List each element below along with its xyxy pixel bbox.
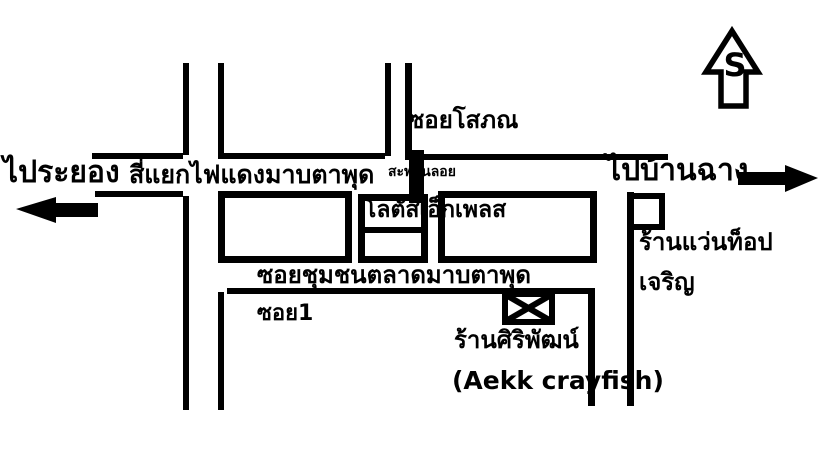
label-intersection: สี่แยกไฟแดงมาบตาพุด [129, 161, 374, 189]
road-soi-sophon-west [385, 63, 391, 156]
label-to-rayong: ไประยอง [3, 156, 120, 189]
label-optical-shop-line1: ร้านแว่นท็อป [639, 229, 773, 255]
label-soi-market: ซอยชุมชนตลาดมาบตาพุด [257, 262, 531, 288]
label-lotus-express: โลตัสเอ็กเพลส [364, 198, 506, 223]
road-left-vertical-west-lower [183, 196, 189, 410]
label-optical-shop-line2: เจริญ [639, 269, 695, 295]
label-soi-1: ซอย1 [257, 302, 313, 326]
label-soi-sophon: ซอยโสภณ [408, 107, 518, 133]
optical-shop-box [628, 193, 665, 230]
label-to-ban-chang: ไปบ้านฉาง [606, 154, 748, 187]
footbridge-bar [409, 150, 424, 203]
road-main-top-mid [218, 153, 385, 159]
building-lotus-divider [358, 227, 428, 233]
hand-drawn-map: S ไประยอง สี่แยกไฟแดงมาบตาพุด สะพานลอย ซ… [0, 0, 819, 460]
building-left-block [218, 191, 352, 263]
label-crayfish-shop-en: (Aekk crayfish) [452, 367, 664, 395]
road-main-bottom-west [95, 191, 183, 197]
west-arrow-icon [14, 190, 100, 226]
compass-letter: S [723, 46, 746, 84]
label-crayfish-shop-th: ร้านศิริพัฒน์ [454, 327, 579, 353]
north-arrow-icon: S [702, 26, 764, 110]
road-left-vertical-west-upper [183, 63, 189, 155]
road-left-vertical-east-lower [218, 292, 224, 410]
x-marker-icon [502, 291, 555, 325]
road-left-vertical-east-upper [218, 63, 224, 155]
